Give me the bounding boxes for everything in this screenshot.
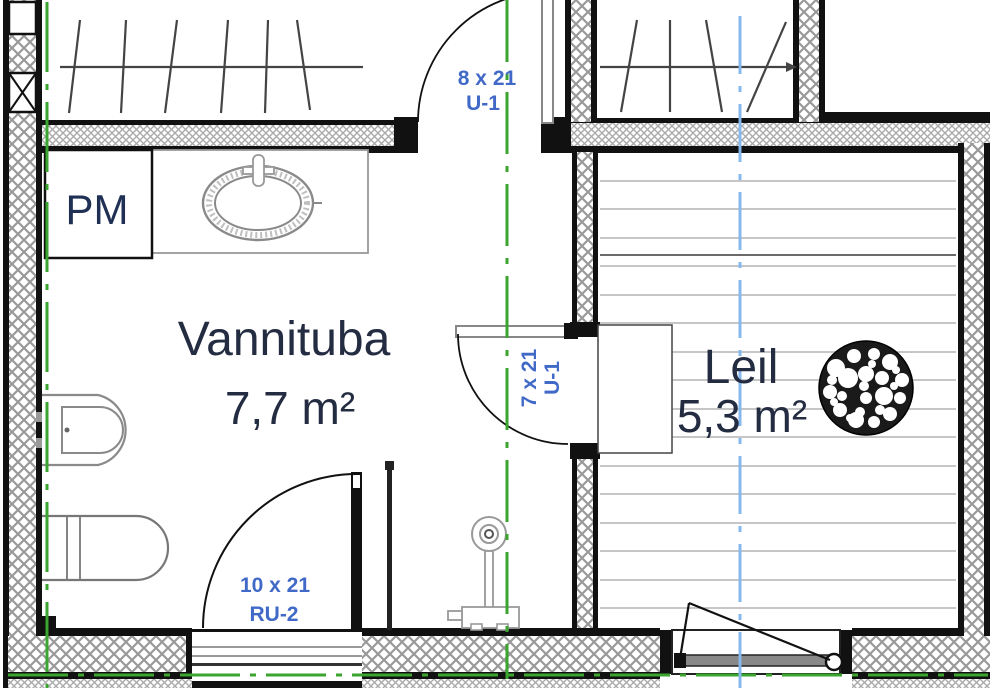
floor-plan-canvas: Vannituba 7,7 m² Leil 5,3 m² PM 8 x 21 U… [0,0,990,688]
column-x-symbol [9,73,36,112]
floor-plan-drawing: Vannituba 7,7 m² Leil 5,3 m² PM 8 x 21 U… [0,0,990,688]
water-heater [42,516,168,580]
door-10x21-size-label: 10 x 21 [240,574,310,597]
room-area-vannituba: 7,7 m² [225,382,355,434]
door-8x21-code-label: U-1 [466,92,500,115]
toilet [36,395,126,465]
room-name-leil: Leil [704,341,779,394]
right-exterior-wall [958,143,990,688]
door-10x21-code-label: RU-2 [249,603,298,626]
door-threshold-sill [186,628,362,688]
closet-divider-wall [565,0,597,122]
door-jamb [394,117,418,153]
room-name-vannituba: Vannituba [178,313,391,366]
door-8x21-size-label: 8 x 21 [458,67,517,90]
door-leaf [456,326,572,337]
door-leaf [351,472,362,630]
wall-corner-box [9,2,36,34]
door-leaf [542,0,553,123]
sauna-stove [819,341,913,435]
shower-partition [385,461,394,630]
room-area-leil: 5,3 m² [677,390,807,442]
washing-machine-label: PM [66,186,129,233]
wardrobe-rail-left [60,20,363,113]
top-wall [42,112,990,153]
door-7x21-code-label: U-1 [541,361,564,395]
sauna-door-landing [598,325,672,453]
wardrobe-rail-right [600,20,797,112]
bathroom-sauna-divider-wall [570,152,600,628]
top-right-wall-post [793,0,825,122]
door-7x21-size-label: 7 x 21 [518,348,541,407]
